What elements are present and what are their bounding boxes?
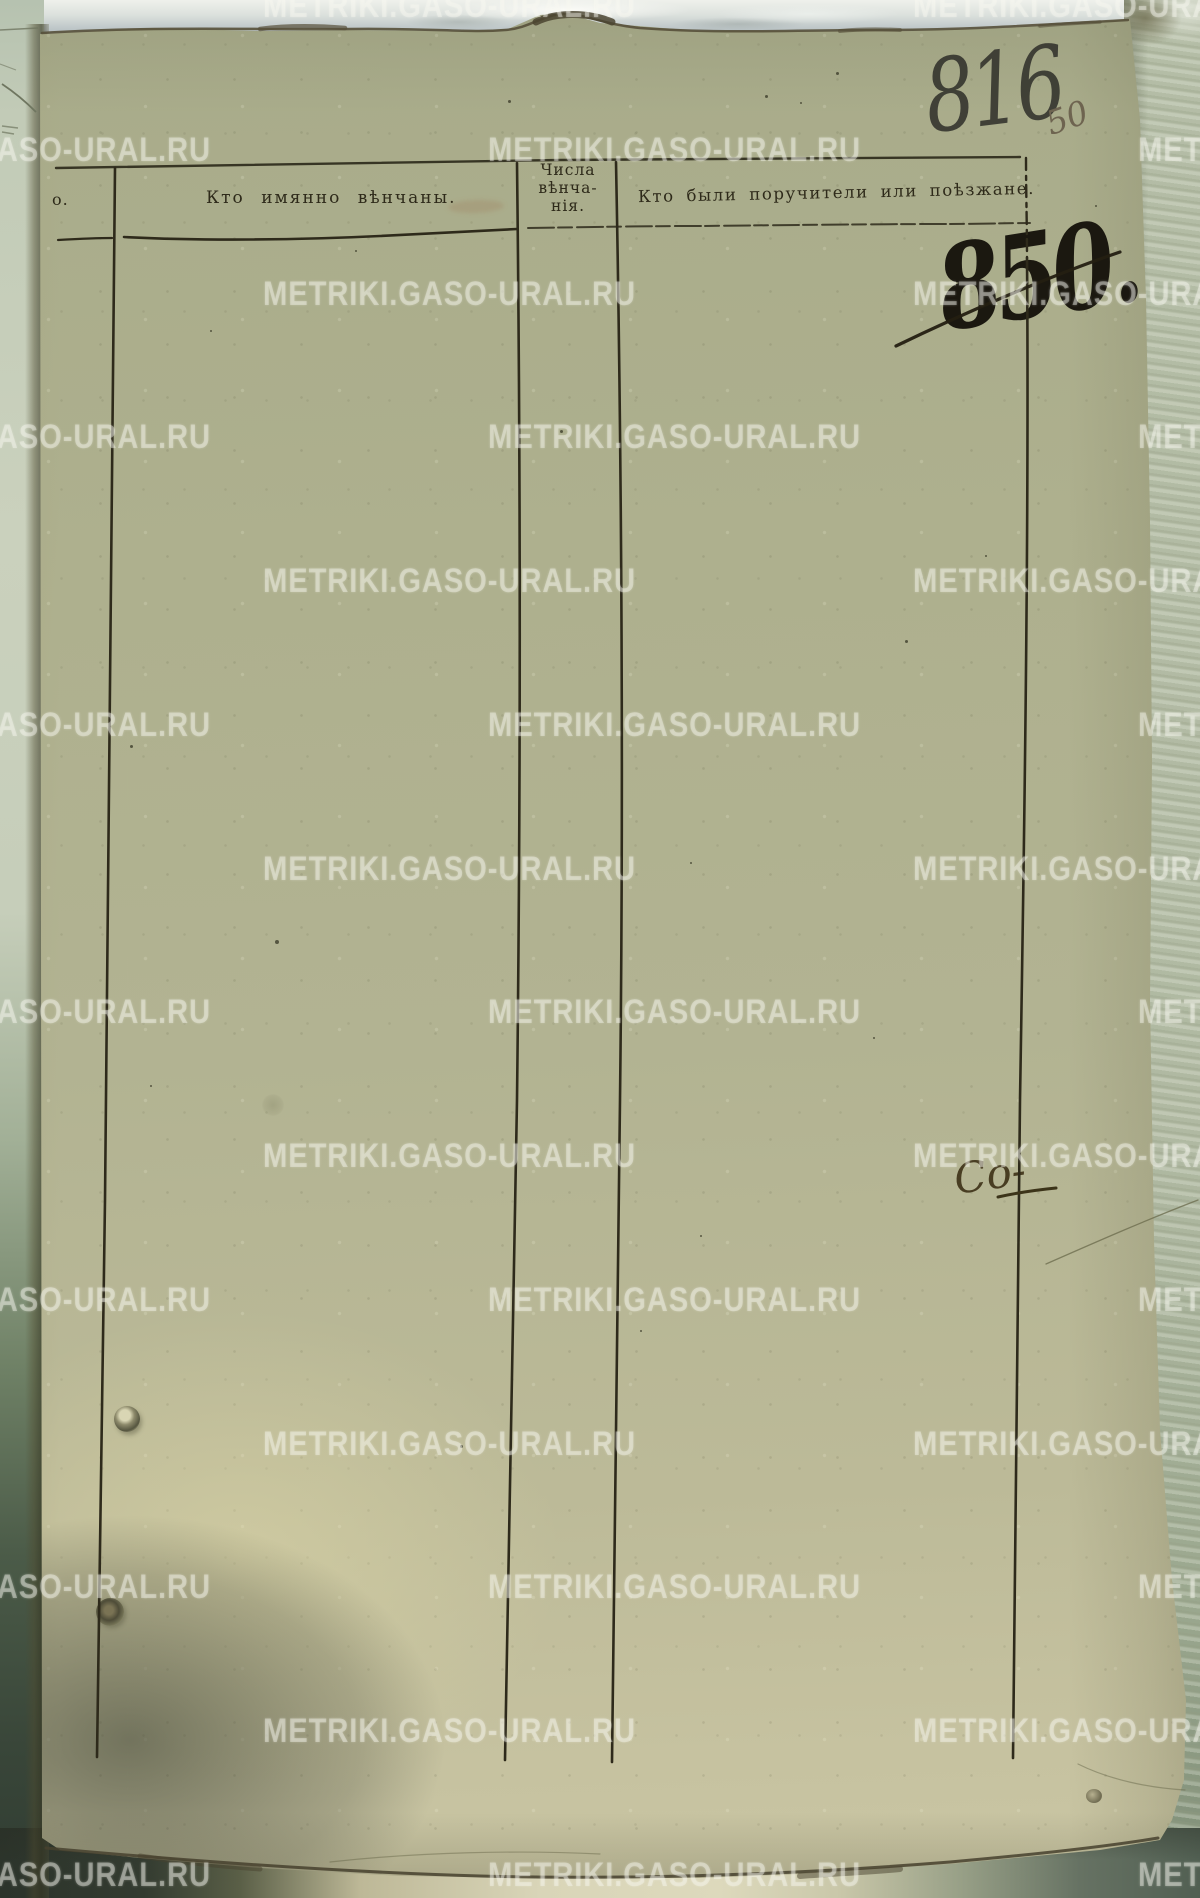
crossed-out-number: 850. <box>928 193 1145 358</box>
ink-speck <box>836 72 839 75</box>
ink-speck <box>275 940 279 944</box>
scanned-register-page: о. Кто имянно вѣнчаны. Числа вѣнча- нія.… <box>0 0 1200 1898</box>
ink-speck <box>700 1235 702 1237</box>
ink-speck <box>150 1085 152 1087</box>
ink-speck <box>985 555 987 557</box>
ink-speck <box>1095 205 1097 207</box>
header-col-date-line1: Числа <box>512 161 624 179</box>
hole-punch-lower <box>96 1598 124 1626</box>
margin-catchword: Со- <box>951 1145 1029 1203</box>
register-page-paper: о. Кто имянно вѣнчаны. Числа вѣнча- нія.… <box>0 0 1200 1898</box>
header-col-date-line2: вѣнча- <box>512 179 624 197</box>
ink-speck <box>640 1330 642 1332</box>
header-col-number: о. <box>52 190 69 209</box>
header-col-witnesses: Кто были поручители или поѣзжане. <box>638 179 1035 206</box>
paper-defect <box>1086 1789 1102 1803</box>
ink-speck <box>560 430 563 433</box>
page-number-pencil: 816 <box>918 23 1068 156</box>
ink-speck <box>130 745 133 748</box>
header-col-date-line3: нія. <box>512 197 624 215</box>
paper-stain <box>262 1094 284 1116</box>
ink-speck <box>210 330 212 332</box>
ink-speck <box>355 250 357 252</box>
ink-speck <box>508 100 511 103</box>
ink-speck <box>765 95 768 98</box>
ink-speck <box>800 102 802 104</box>
ink-speck <box>460 1445 463 1448</box>
header-col-married: Кто имянно вѣнчаны. <box>206 188 457 208</box>
header-col-date: Числа вѣнча- нія. <box>512 161 624 215</box>
hole-punch-upper <box>114 1406 140 1432</box>
ink-speck <box>873 1037 875 1039</box>
ink-speck <box>905 640 908 643</box>
ink-speck <box>690 862 692 864</box>
